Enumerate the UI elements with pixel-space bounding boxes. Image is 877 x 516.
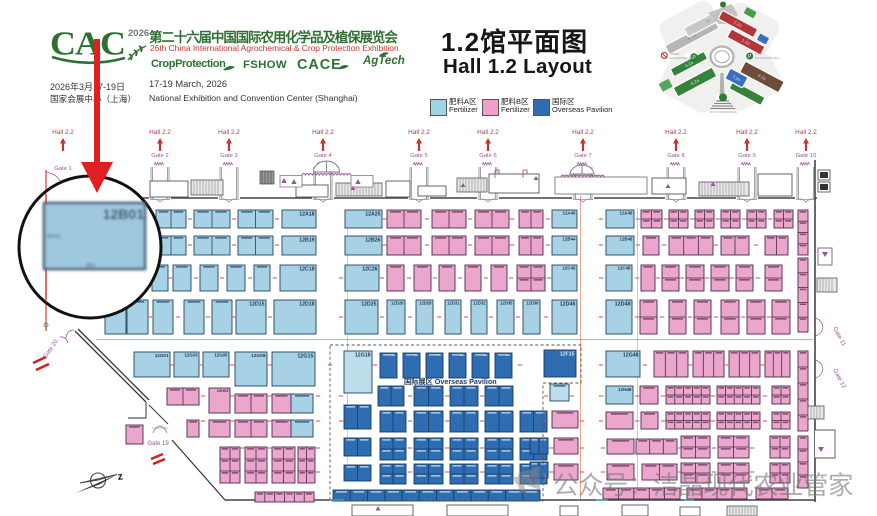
svg-text:Hall 2.2: Hall 2.2 — [312, 129, 334, 136]
svg-text:Hall 2.2: Hall 2.2 — [149, 129, 171, 136]
svg-text:12G01: 12G01 — [155, 353, 169, 358]
svg-text:Gate 19: Gate 19 — [147, 441, 169, 447]
svg-text:12A48: 12A48 — [620, 211, 633, 216]
svg-text:12G48: 12G48 — [623, 352, 639, 358]
svg-text:12G03: 12G03 — [184, 353, 198, 358]
svg-text:Gate 1: Gate 1 — [54, 166, 71, 172]
svg-text:12A18: 12A18 — [299, 211, 314, 217]
svg-text:12D26: 12D26 — [391, 300, 404, 305]
svg-text:Hall 2.2: Hall 2.2 — [572, 129, 594, 136]
svg-text:12D35: 12D35 — [500, 300, 513, 305]
svg-text:12D31: 12D31 — [447, 300, 460, 305]
svg-text:Gate 6: Gate 6 — [479, 153, 496, 159]
svg-text:9m: 9m — [86, 262, 95, 269]
svg-text:12C26: 12C26 — [362, 266, 377, 272]
svg-text:12G15: 12G15 — [297, 354, 313, 360]
svg-text:12D46: 12D46 — [560, 302, 576, 308]
svg-text:12H05: 12H05 — [217, 388, 230, 393]
svg-text:Hall 2.2: Hall 2.2 — [736, 129, 758, 136]
svg-text:Gate 8: Gate 8 — [667, 153, 684, 159]
svg-text:国际展区 Overseas Pavilion: 国际展区 Overseas Pavilion — [404, 377, 497, 386]
svg-text:12C18: 12C18 — [299, 266, 314, 272]
svg-text:Gate 10: Gate 10 — [796, 153, 817, 159]
svg-text:Gate 12: Gate 12 — [831, 368, 847, 390]
svg-text:Hall 2.2: Hall 2.2 — [218, 129, 240, 136]
svg-text:Gate 7: Gate 7 — [574, 153, 591, 159]
svg-text:12A25: 12A25 — [365, 211, 380, 217]
svg-text:12F15: 12F15 — [560, 351, 575, 357]
svg-text:12D48: 12D48 — [615, 302, 631, 308]
svg-text:Hall 2.2: Hall 2.2 — [665, 129, 687, 136]
svg-text:Gate 11: Gate 11 — [831, 326, 846, 348]
svg-text:12D18: 12D18 — [299, 301, 314, 307]
svg-text:Gate 3: Gate 3 — [220, 153, 237, 159]
svg-text:12G18: 12G18 — [355, 352, 371, 358]
svg-text:z: z — [117, 470, 124, 483]
svg-text:Hall 2.2: Hall 2.2 — [795, 129, 817, 136]
svg-text:Gate 4: Gate 4 — [314, 153, 332, 159]
svg-text:12B01: 12B01 — [103, 206, 144, 222]
svg-text:12G05: 12G05 — [214, 353, 228, 358]
svg-text:Gate 2: Gate 2 — [151, 153, 168, 159]
svg-text:12D25: 12D25 — [361, 301, 376, 307]
svg-text:12D36: 12D36 — [526, 300, 539, 305]
svg-text:Hall 2.2: Hall 2.2 — [52, 129, 74, 136]
svg-text:12B26: 12B26 — [365, 237, 380, 243]
svg-text:8(m): 8(m) — [47, 233, 60, 240]
svg-text:12C45: 12C45 — [563, 266, 576, 271]
svg-text:12B48: 12B48 — [620, 237, 633, 242]
svg-text:12B44: 12B44 — [563, 237, 576, 242]
svg-text:12D32: 12D32 — [473, 300, 486, 305]
svg-text:12D15: 12D15 — [249, 301, 264, 307]
svg-text:Hall 2.2: Hall 2.2 — [408, 129, 430, 136]
svg-text:12A45: 12A45 — [563, 211, 576, 216]
svg-text:Gate 9: Gate 9 — [738, 153, 755, 159]
svg-text:12G08: 12G08 — [251, 353, 266, 359]
svg-text:12B19: 12B19 — [299, 237, 314, 243]
svg-text:Hall 2.2: Hall 2.2 — [477, 129, 499, 136]
svg-text:12D28: 12D28 — [419, 300, 432, 305]
svg-text:Gate 5: Gate 5 — [410, 153, 427, 159]
svg-text:12C48: 12C48 — [618, 266, 631, 271]
svg-text:12H48: 12H48 — [618, 387, 632, 392]
